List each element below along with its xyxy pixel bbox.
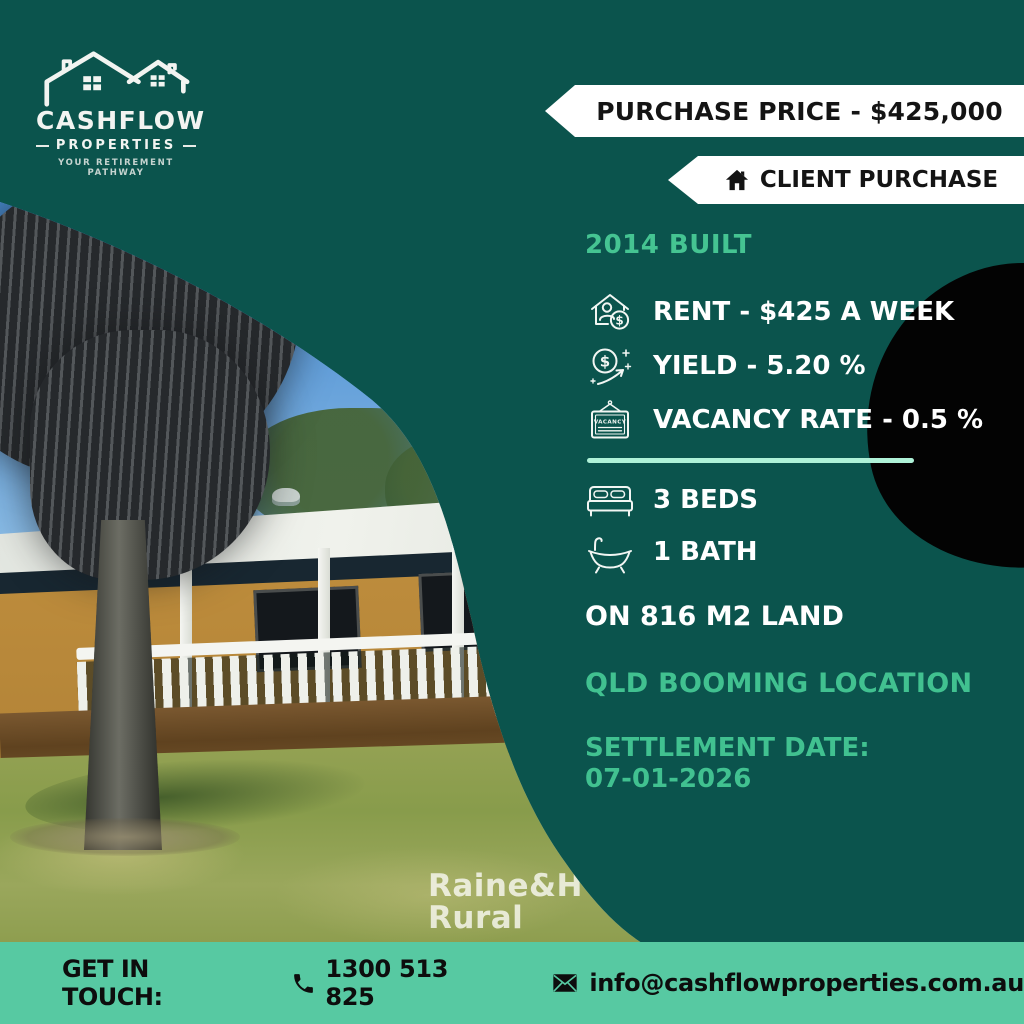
envelope-icon [551,969,579,997]
land-size: ON 816 M2 LAND [585,601,1005,632]
phone-icon [291,971,316,996]
yield-dollar-growth-icon: $ [585,342,635,390]
phone-contact[interactable]: 1300 513 825 [291,955,503,1011]
logo-tagline: YOUR RETIREMENT PATHWAY [36,158,196,178]
rent-row: $ RENT - $425 A WEEK [585,288,1005,336]
phone-number: 1300 513 825 [325,955,503,1011]
vacancy-row: VACANCY VACANCY RATE - 0.5 % [585,396,1005,444]
logo-brand-name: CASHFLOW [36,106,196,135]
property-details: 2014 BUILT $ RENT - $425 A WEEK [585,230,1005,795]
watermark-line2: Rural [428,902,583,934]
vacancy-sign-text: VACANCY [594,420,627,426]
beds-row: 3 BEDS [585,477,1005,523]
bed-icon [585,480,635,520]
yield-row: $ YIELD - 5.20 % [585,342,1005,390]
logo-dash-left [36,145,49,147]
settlement-label: SETTLEMENT DATE: [585,733,1005,764]
watermark-line1: Raine&H [428,870,583,902]
client-purchase-ribbon: CLIENT PURCHASE [668,156,1024,204]
rent-house-dollar-icon: $ [585,288,635,336]
garden-rocks [10,818,240,856]
photo-watermark: Raine&H Rural [428,870,583,934]
email-address: info@cashflowproperties.com.au [589,969,1024,997]
vacancy-label: VACANCY RATE - 0.5 % [653,405,983,435]
yield-label: YIELD - 5.20 % [653,351,866,381]
roof-vent [272,488,300,506]
vacancy-sign-icon: VACANCY [585,397,635,443]
purchase-price-ribbon: PURCHASE PRICE - $425,000 [545,85,1024,137]
settlement-date: 07-01-2026 [585,764,1005,795]
get-in-touch-label: GET IN TOUCH: [62,955,255,1011]
purchase-price-label: PURCHASE PRICE - $425,000 [596,97,1003,126]
bath-row: 1 BATH [585,529,1005,575]
bath-label: 1 BATH [653,537,758,567]
svg-text:$: $ [600,353,610,371]
settlement-block: SETTLEMENT DATE: 07-01-2026 [585,733,1005,795]
beds-label: 3 BEDS [653,485,758,515]
contact-bar: GET IN TOUCH: 1300 513 825 info@cashflow… [0,942,1024,1024]
location-highlight: QLD BOOMING LOCATION [585,668,1005,699]
section-divider [587,458,914,463]
logo-sub-name: PROPERTIES [36,138,196,153]
twin-houses-logo-icon [36,50,196,108]
built-year: 2014 BUILT [585,230,1005,260]
logo-sub-text: PROPERTIES [56,138,176,153]
email-contact[interactable]: info@cashflowproperties.com.au [551,969,1024,997]
company-logo: CASHFLOW PROPERTIES YOUR RETIREMENT PATH… [36,50,196,178]
rent-label: RENT - $425 A WEEK [653,297,954,327]
bathtub-icon [585,530,635,574]
client-purchase-label: CLIENT PURCHASE [760,167,998,193]
logo-dash-right [183,145,196,147]
flyer-canvas: Raine&H Rural CASHFLOW PROPERTIES YOUR [0,0,1024,1024]
svg-text:$: $ [615,314,623,328]
home-icon [724,167,750,193]
